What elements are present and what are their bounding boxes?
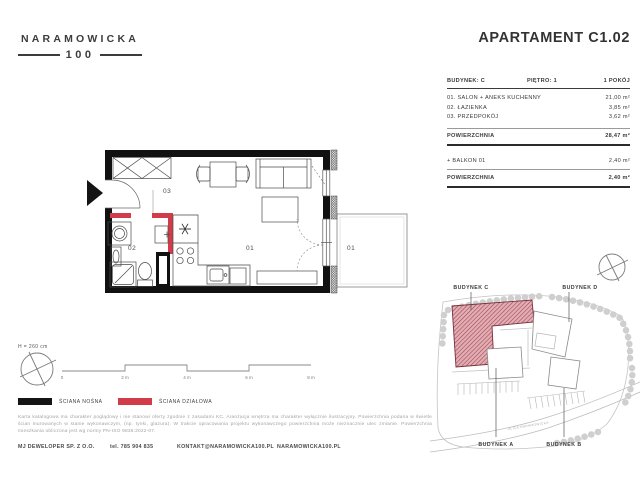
room-label-living: 01 xyxy=(246,245,254,252)
balcony-label: + BALKON 01 xyxy=(447,158,486,164)
page-title: APARTAMENT C1.02 xyxy=(478,30,630,46)
unit-building: BUDYNEK: C xyxy=(447,78,485,84)
wall-hatch xyxy=(331,150,337,293)
kitchen-sink xyxy=(207,266,229,284)
ceiling-height-note: H = 260 cm xyxy=(18,344,48,350)
balcony-door xyxy=(297,219,332,271)
site-building-b xyxy=(548,357,580,389)
unit-table: BUDYNEK: C PIĘTRO: 1 1 POKÓJ 01. SALON +… xyxy=(447,78,630,188)
chair xyxy=(197,165,211,183)
tv-bench xyxy=(257,271,317,284)
scale-tick-label: 6 m xyxy=(245,375,253,380)
room-area: 3,62 m² xyxy=(609,113,630,123)
unit-rooms-count: 1 POKÓJ xyxy=(604,78,630,84)
legend-partition-wall: ŚCIANA DZIAŁOWA xyxy=(118,398,212,405)
room-label: 03. PRZEDPOKÓJ xyxy=(447,113,498,123)
footer-company: MJ DEWELOPER SP. Z O.O. xyxy=(18,444,95,450)
scale-tick-label: 0 xyxy=(61,375,64,380)
stove xyxy=(177,248,194,264)
partition-wall-label: ŚCIANA DZIAŁOWA xyxy=(159,399,212,405)
duct-wall xyxy=(156,252,170,287)
site-label-building-b: BUDYNEK B xyxy=(546,442,581,448)
room-row: 02. ŁAZIENKA 3,85 m² xyxy=(447,104,630,114)
entry-door xyxy=(105,180,140,208)
footer-website-link[interactable]: NARAMOWICKA100.PL xyxy=(277,444,341,450)
fridge-symbol-icon xyxy=(179,224,191,234)
entrance-arrow-icon xyxy=(87,180,103,206)
scale-bar: 0 2 m 4 m 6 m 8 m xyxy=(61,365,315,380)
toilet xyxy=(138,263,153,287)
balcony-total-value: 2,40 m² xyxy=(609,175,630,181)
footer-email-link[interactable]: KONTAKT@NARAMOWICKA100.PL xyxy=(177,444,274,450)
room-area: 3,85 m² xyxy=(609,104,630,114)
brand-number: 100 xyxy=(60,49,101,61)
balcony-row: + BALKON 01 2,40 m² xyxy=(447,153,630,169)
bearing-wall-swatch xyxy=(18,398,52,405)
room-label-balcony: 01 xyxy=(347,245,355,252)
room-label-bathroom: 02 xyxy=(128,245,136,252)
plan-graphics: 03 02 01 01 0 2 m 4 m 6 m 8 m xyxy=(0,0,640,480)
total-area-row: POWIERZCHNIA 28,47 m² xyxy=(447,128,630,144)
compass-icon xyxy=(20,352,56,386)
site-plan: BUDYNEK C BUDYNEK D BUDYNEK A BUDYNEK B … xyxy=(430,254,640,452)
room-label: 02. ŁAZIENKA xyxy=(447,104,487,114)
brand-rule-right xyxy=(100,54,142,55)
wardrobe xyxy=(113,158,171,179)
cabinet xyxy=(230,268,246,284)
room-row: 01. SALON + ANEKS KUCHENNY 21,00 m² xyxy=(447,94,630,104)
brand-logo: NARAMOWICKA 100 xyxy=(18,33,142,61)
apartment-floor-plan: 03 02 01 01 xyxy=(87,150,407,293)
partition-walls xyxy=(110,213,173,254)
balcony-total-row: POWIERZCHNIA 2,40 m² xyxy=(447,170,630,186)
room-label: 01. SALON + ANEKS KUCHENNY xyxy=(447,94,541,104)
room-rows: 01. SALON + ANEKS KUCHENNY 21,00 m² 02. … xyxy=(447,89,630,128)
site-label-building-a: BUDYNEK A xyxy=(478,442,513,448)
sofa xyxy=(256,159,326,188)
brand-rule-left xyxy=(18,54,60,55)
room-label-hall: 03 xyxy=(163,188,171,195)
site-compass-icon xyxy=(597,254,628,281)
site-label-building-c: BUDYNEK C xyxy=(453,285,488,291)
total-area-label: POWIERZCHNIA xyxy=(447,133,494,139)
scale-tick-label: 4 m xyxy=(183,375,191,380)
scale-tick-label: 8 m xyxy=(307,375,315,380)
table-rule xyxy=(447,186,630,188)
coffee-table xyxy=(262,197,298,222)
partition-wall-swatch xyxy=(118,398,152,405)
total-area-value: 28,47 m² xyxy=(605,133,630,139)
disclaimer-text: Karta katalogowa ma charakter poglądowy … xyxy=(18,414,432,436)
scale-tick-label: 2 m xyxy=(121,375,129,380)
dining-table xyxy=(210,162,236,187)
chair xyxy=(236,165,250,183)
room-row: 03. PRZEDPOKÓJ 3,62 m² xyxy=(447,113,630,123)
catalog-card: 03 02 01 01 0 2 m 4 m 6 m 8 m xyxy=(0,0,640,480)
kitchen-counter xyxy=(173,215,250,286)
legend-bearing-wall: ŚCIANA NOŚNA xyxy=(18,398,103,405)
site-label-building-d: BUDYNEK D xyxy=(562,285,597,291)
brand-name: NARAMOWICKA xyxy=(18,33,142,45)
footer-phone: tel. 785 904 835 xyxy=(110,444,153,450)
site-building-a xyxy=(487,347,523,379)
unit-table-header: BUDYNEK: C PIĘTRO: 1 1 POKÓJ xyxy=(447,78,630,88)
bearing-wall-label: ŚCIANA NOŚNA xyxy=(59,399,103,405)
balcony-area-value: 2,40 m² xyxy=(609,158,630,164)
balcony-total-label: POWIERZCHNIA xyxy=(447,175,494,181)
hall-cabinet xyxy=(155,226,170,243)
unit-floor: PIĘTRO: 1 xyxy=(527,78,557,84)
bathroom-sink xyxy=(111,247,121,266)
room-area: 21,00 m² xyxy=(606,94,630,104)
site-outbuilding xyxy=(535,333,556,349)
